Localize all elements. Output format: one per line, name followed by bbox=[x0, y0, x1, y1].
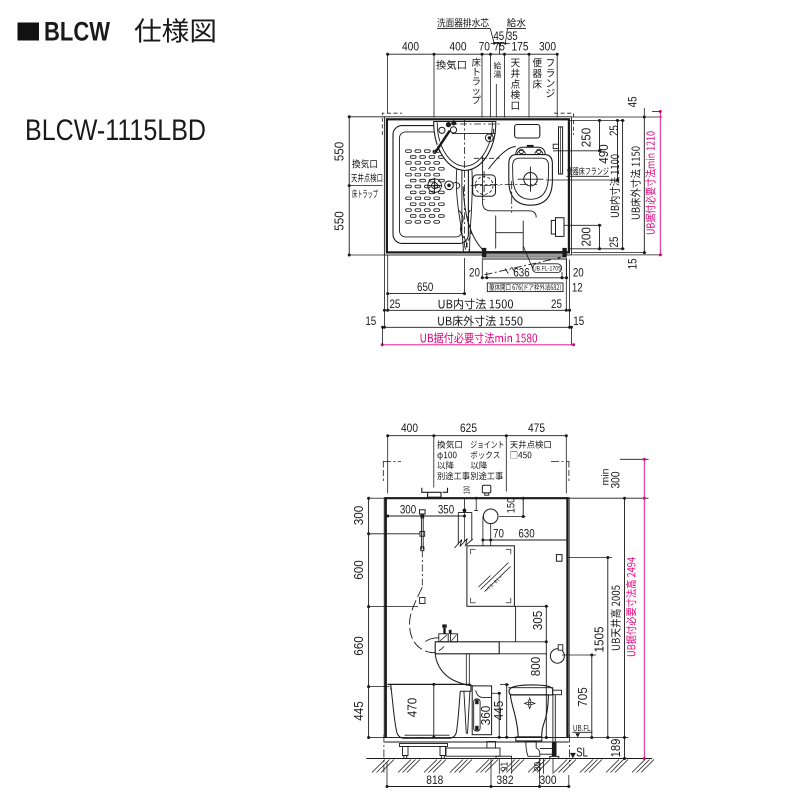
svg-text:300: 300 bbox=[609, 471, 623, 488]
svg-text:25: 25 bbox=[551, 299, 562, 311]
svg-text:BLCW: BLCW bbox=[44, 17, 110, 47]
svg-text:550: 550 bbox=[331, 211, 346, 231]
svg-text:818: 818 bbox=[426, 773, 443, 787]
svg-text:25: 25 bbox=[609, 125, 621, 136]
svg-text:400: 400 bbox=[401, 421, 418, 435]
svg-text:475: 475 bbox=[528, 421, 545, 435]
svg-text:490: 490 bbox=[596, 144, 611, 164]
svg-text:25: 25 bbox=[609, 237, 621, 248]
svg-text:705: 705 bbox=[575, 687, 590, 707]
svg-text:445: 445 bbox=[491, 701, 506, 721]
svg-text:300: 300 bbox=[400, 505, 416, 517]
svg-text:UB.FL: UB.FL bbox=[573, 724, 591, 733]
svg-text:15: 15 bbox=[365, 316, 376, 328]
svg-text:800: 800 bbox=[528, 657, 543, 677]
svg-text:400: 400 bbox=[450, 40, 467, 54]
svg-text:300: 300 bbox=[540, 773, 557, 787]
svg-text:35: 35 bbox=[507, 31, 518, 43]
svg-text:400: 400 bbox=[402, 40, 419, 54]
svg-text:305: 305 bbox=[530, 611, 545, 631]
svg-text:382: 382 bbox=[497, 773, 514, 787]
svg-text:250: 250 bbox=[579, 128, 594, 148]
svg-text:660: 660 bbox=[351, 636, 366, 656]
svg-text:630: 630 bbox=[518, 529, 534, 541]
svg-text:12: 12 bbox=[572, 283, 583, 295]
svg-text:350: 350 bbox=[438, 505, 454, 517]
svg-text:UB.FL-1705: UB.FL-1705 bbox=[533, 265, 562, 272]
svg-text:20: 20 bbox=[469, 268, 480, 280]
svg-text:470: 470 bbox=[405, 698, 420, 718]
svg-text:45: 45 bbox=[628, 96, 640, 107]
svg-text:650: 650 bbox=[417, 282, 433, 294]
svg-text:15: 15 bbox=[573, 316, 584, 328]
svg-text:300: 300 bbox=[351, 506, 366, 526]
svg-text:625: 625 bbox=[460, 421, 477, 435]
svg-text:200: 200 bbox=[579, 227, 594, 247]
svg-text:15: 15 bbox=[628, 258, 640, 269]
svg-text:636: 636 bbox=[513, 268, 529, 280]
svg-text:25: 25 bbox=[389, 299, 400, 311]
svg-text:150: 150 bbox=[506, 498, 518, 514]
svg-text:20: 20 bbox=[573, 268, 584, 280]
svg-text:550: 550 bbox=[331, 142, 346, 162]
svg-text:70: 70 bbox=[479, 40, 491, 54]
svg-text:445: 445 bbox=[351, 701, 366, 721]
svg-text:1505: 1505 bbox=[591, 627, 606, 653]
svg-text:70: 70 bbox=[493, 529, 504, 541]
svg-text:100: 100 bbox=[462, 486, 471, 495]
svg-text:SL: SL bbox=[576, 746, 588, 760]
svg-text:189: 189 bbox=[609, 739, 623, 758]
svg-text:600: 600 bbox=[351, 560, 366, 580]
svg-text:300: 300 bbox=[539, 40, 556, 54]
svg-text:45: 45 bbox=[493, 31, 504, 43]
svg-text:BLCW-1115LBD: BLCW-1115LBD bbox=[25, 114, 206, 147]
